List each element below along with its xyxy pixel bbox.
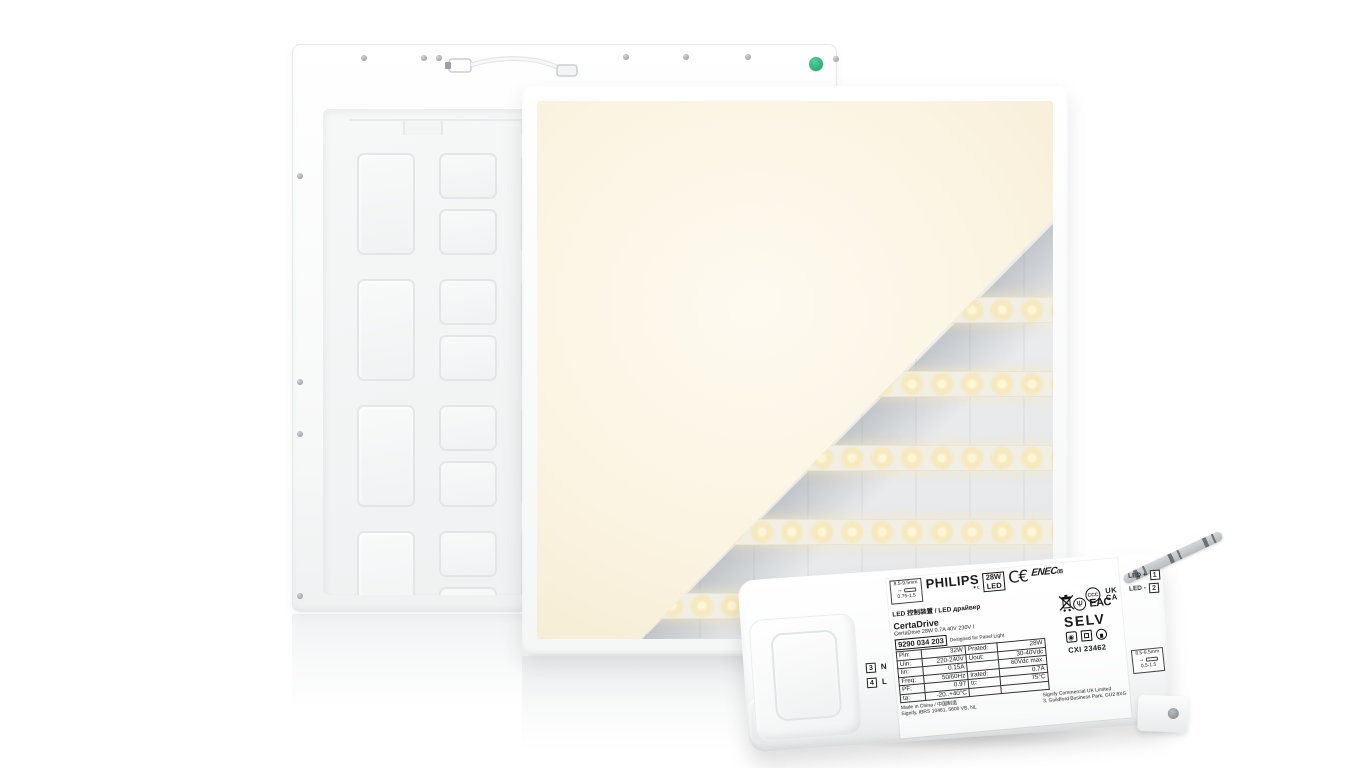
independent-driver-icon: ◉ [1065,631,1077,643]
stamped-rect [357,153,415,255]
driver-body: 3 N 4 L LED + 1 LED - 2 8.5-9 [738,551,1173,752]
class-ii-double-square-icon [1080,630,1092,642]
rivet [745,54,751,60]
rivet [297,593,303,599]
terminal-cover [748,613,862,742]
wire-strip-spec-right: 8.5-9.5mm → 0.5-1.5 [1131,647,1165,674]
front-panel-lit-surface [537,101,1053,639]
push-terminal-button [770,629,842,721]
stamped-rect [357,405,415,507]
stamped-rect [439,153,497,255]
mounting-flange [1137,695,1188,733]
output-led-minus: LED - 2 [1129,581,1161,596]
rivet [421,55,427,61]
led-driver: 3 N 4 L LED + 1 LED - 2 8.5-9 [738,551,1173,752]
qc-indicator-dot [809,57,823,71]
stamped-rect [439,279,497,381]
safety-icons-row: ◉ [1065,628,1107,643]
rivet [361,55,367,61]
label-left-column: CertaDrive CertaDrive 28W 0.7A 40V 230V … [893,608,1052,703]
stamped-rect [357,531,415,595]
terminal-n: 3 N [865,659,887,675]
rivet [683,54,689,60]
wire-gauge: 0.75-1.5 [894,593,920,600]
eac-mark-icon: EAC [1089,595,1112,609]
badge-led: LED [986,581,1002,591]
wire-strip-spec-left: 8.5-9.5mm → 0.75-1.5 [889,578,923,605]
rivet [297,173,303,179]
led-strip [537,445,1053,471]
cert-marks-row: Ψ EAC [1073,595,1112,611]
brand-block: PHILIPS ✶c [925,573,980,596]
output-label: LED - [1129,582,1147,596]
rivet [297,379,303,385]
stamped-rect [439,405,497,507]
ce-mark-icon: C€ [1008,568,1029,586]
output-number-box: 1 [1149,569,1160,580]
rivet [436,55,442,61]
rivet [623,54,629,60]
cxi-code: CXI 23462 [1068,642,1107,654]
output-number-box: 2 [1149,582,1160,593]
stamped-rect [357,279,415,381]
stamped-rect [439,531,497,595]
power-badge: 28W LED [982,571,1005,592]
terminal-letter: N [880,659,887,674]
safety-isolating-icon [1095,628,1107,640]
driver-label: 8.5-9.5mm → 0.75-1.5 PHILIPS ✶c 28W LED [886,558,1132,738]
mounting-hole [1168,708,1179,719]
front-panel-cutaway [537,101,1053,639]
product-photo-scene: 3 N 4 L LED + 1 LED - 2 8.5-9 [0,0,1360,768]
rivet [833,56,839,62]
enec-mark-icon: ENEC05 [1031,565,1063,581]
led-strip [537,371,1053,397]
weee-crossed-bin-icon [1058,593,1075,613]
terminal-number-box: 4 [867,677,878,688]
led-strip [537,519,1053,545]
terminal-letter: L [881,674,887,689]
rivet [297,431,303,437]
selv-mark: SELV [1063,610,1106,630]
label-right-column: Ψ EAC SELV ◉ CXI 23462 [1044,601,1125,689]
input-terminal-labels: 3 N 4 L [865,659,888,690]
output-terminal-labels: LED + 1 LED - 2 [1128,568,1161,596]
terminal-l: 4 L [866,674,888,690]
terminal-number-box: 3 [866,662,877,673]
conformity-circle-icon: Ψ [1073,597,1087,611]
led-strip [537,297,1053,323]
